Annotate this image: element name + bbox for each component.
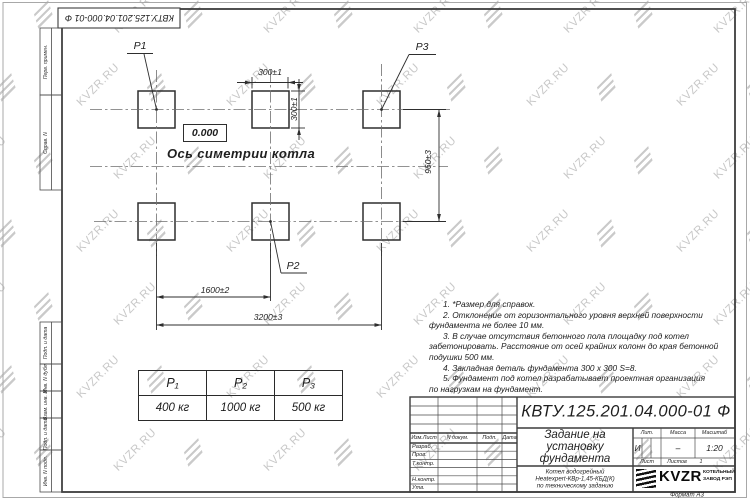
tb-header-izm-list: Изм.Лист xyxy=(411,435,436,441)
product-line-3: по техническому заданию xyxy=(537,483,613,490)
tb-sheets-value: 1 xyxy=(700,459,703,465)
load-value-p1: 400 кг xyxy=(139,396,207,421)
tb-sheet-label: Лист xyxy=(640,459,654,465)
format-label: Формат А3 xyxy=(670,492,704,499)
doc-title-line-3: фундамента xyxy=(540,453,611,465)
note-line: забетонировать. Расстояние от осей крайн… xyxy=(429,341,735,352)
product-line-2: Heatexpert-КВр-1,45-КБД(К) xyxy=(535,475,614,482)
kvzr-logo-text: KVZR xyxy=(659,468,702,485)
note-line: фундамента не более 10 мм. xyxy=(429,320,735,331)
sidebar-label-vzam-inv-n: Взам. инв. N xyxy=(40,391,52,418)
note-line: по нагрузкам на фундамент. xyxy=(429,384,735,395)
tb-mass-value: – xyxy=(676,443,681,453)
doc-title-line-2: установку xyxy=(546,441,603,453)
tb-header-data: Дата xyxy=(502,435,516,441)
product-line-1: Котел водогрейный xyxy=(546,468,605,475)
tb-scale-value: 1:20 xyxy=(706,443,723,453)
tb-scale-label: Масштаб xyxy=(702,430,727,436)
symmetry-axis-label: Ось симетрии котла xyxy=(167,146,315,161)
dim-mid-span: 1600±2 xyxy=(201,285,230,295)
note-line: 3. В случае отсутствия бетонного пола пл… xyxy=(429,331,735,342)
corner-stamp: КВТУ.125.201.04.000-01 Ф xyxy=(58,8,180,28)
tb-mass-label: Масса xyxy=(670,430,686,436)
elevation-value: 0.000 xyxy=(192,127,218,139)
note-line: подушки 500 мм. xyxy=(429,352,735,363)
sidebar-label-perv-primen: Перв. примен. xyxy=(40,28,52,95)
dim-full-span: 3200±3 xyxy=(254,312,283,322)
load-value-p2: 1000 кг xyxy=(207,396,275,421)
tb-row-nkontr: Н.контр. xyxy=(412,477,436,483)
company-line-2: ЗАВОД РЭП xyxy=(703,477,732,482)
load-value-p3: 500 кг xyxy=(275,396,343,421)
load-table: Р₁ Р₂ Р₃ 400 кг 1000 кг 500 кг xyxy=(138,370,343,421)
tb-row-tkontr: Т.контр. xyxy=(412,461,435,467)
tb-lit-value: И xyxy=(634,443,640,453)
kvzr-logo-icon xyxy=(636,469,656,488)
dim-pad-height: 300±1 xyxy=(289,97,299,121)
sidebar-label-inv-n-podl: Инв. N подл. xyxy=(40,450,52,492)
elevation-mark: 0.000 xyxy=(183,124,227,142)
note-line: 5. Фундамент под котел разрабатывает про… xyxy=(429,373,735,384)
drawing-sheet: KVZR.RUKVZR.RUKVZR.RUKVZR.RUKVZR.RUKVZR.… xyxy=(0,0,750,500)
point-label-p2: Р2 xyxy=(287,260,300,272)
load-table-header-row: Р₁ Р₂ Р₃ xyxy=(139,371,343,396)
tb-row-razrab: Разраб. xyxy=(412,444,432,450)
note-line: 4. Закладная деталь фундамента 300 х 300… xyxy=(429,363,735,374)
notes-block: 1. *Размер для справок. 2. Отклонение от… xyxy=(429,299,735,394)
doc-number: КВТУ.125.201.04.000-01 Ф xyxy=(521,403,730,422)
tb-sheets-label: Листов xyxy=(667,459,687,465)
tb-lit-label: Лит. xyxy=(641,430,654,436)
tb-row-prov: Пров. xyxy=(412,452,427,458)
sidebar-label-podp-i-data-2: Подп. и дата xyxy=(40,418,52,450)
dim-row-spacing: 960±3 xyxy=(423,150,433,174)
note-line: 2. Отклонение от горизонтального уровня … xyxy=(429,310,735,321)
load-header-p3: Р₃ xyxy=(275,371,343,396)
point-label-p1: Р1 xyxy=(134,40,147,52)
tb-header-podp: Подп. xyxy=(482,435,496,441)
point-label-p3: Р3 xyxy=(416,41,429,53)
load-header-p2: Р₂ xyxy=(207,371,275,396)
note-line: 1. *Размер для справок. xyxy=(429,299,735,310)
sidebar-label-inv-n-dubl: Инв. N дубл. xyxy=(40,364,52,391)
tb-header-n-dokum: N докум. xyxy=(447,435,469,441)
load-header-p1: Р₁ xyxy=(139,371,207,396)
company-line-1: КОТЕЛЬНЫЙ xyxy=(703,470,735,475)
load-table-value-row: 400 кг 1000 кг 500 кг xyxy=(139,396,343,421)
doc-title-line-1: Задание на xyxy=(544,429,605,441)
sidebar-label-sprav-n: Справ. N xyxy=(40,95,52,190)
corner-stamp-text: КВТУ.125.201.04.000-01 Ф xyxy=(65,13,174,23)
sidebar-label-podp-i-data-1: Подп. и дата xyxy=(40,322,52,364)
tb-row-utv: Утв. xyxy=(412,485,425,491)
dim-pad-width: 300±1 xyxy=(258,67,282,77)
